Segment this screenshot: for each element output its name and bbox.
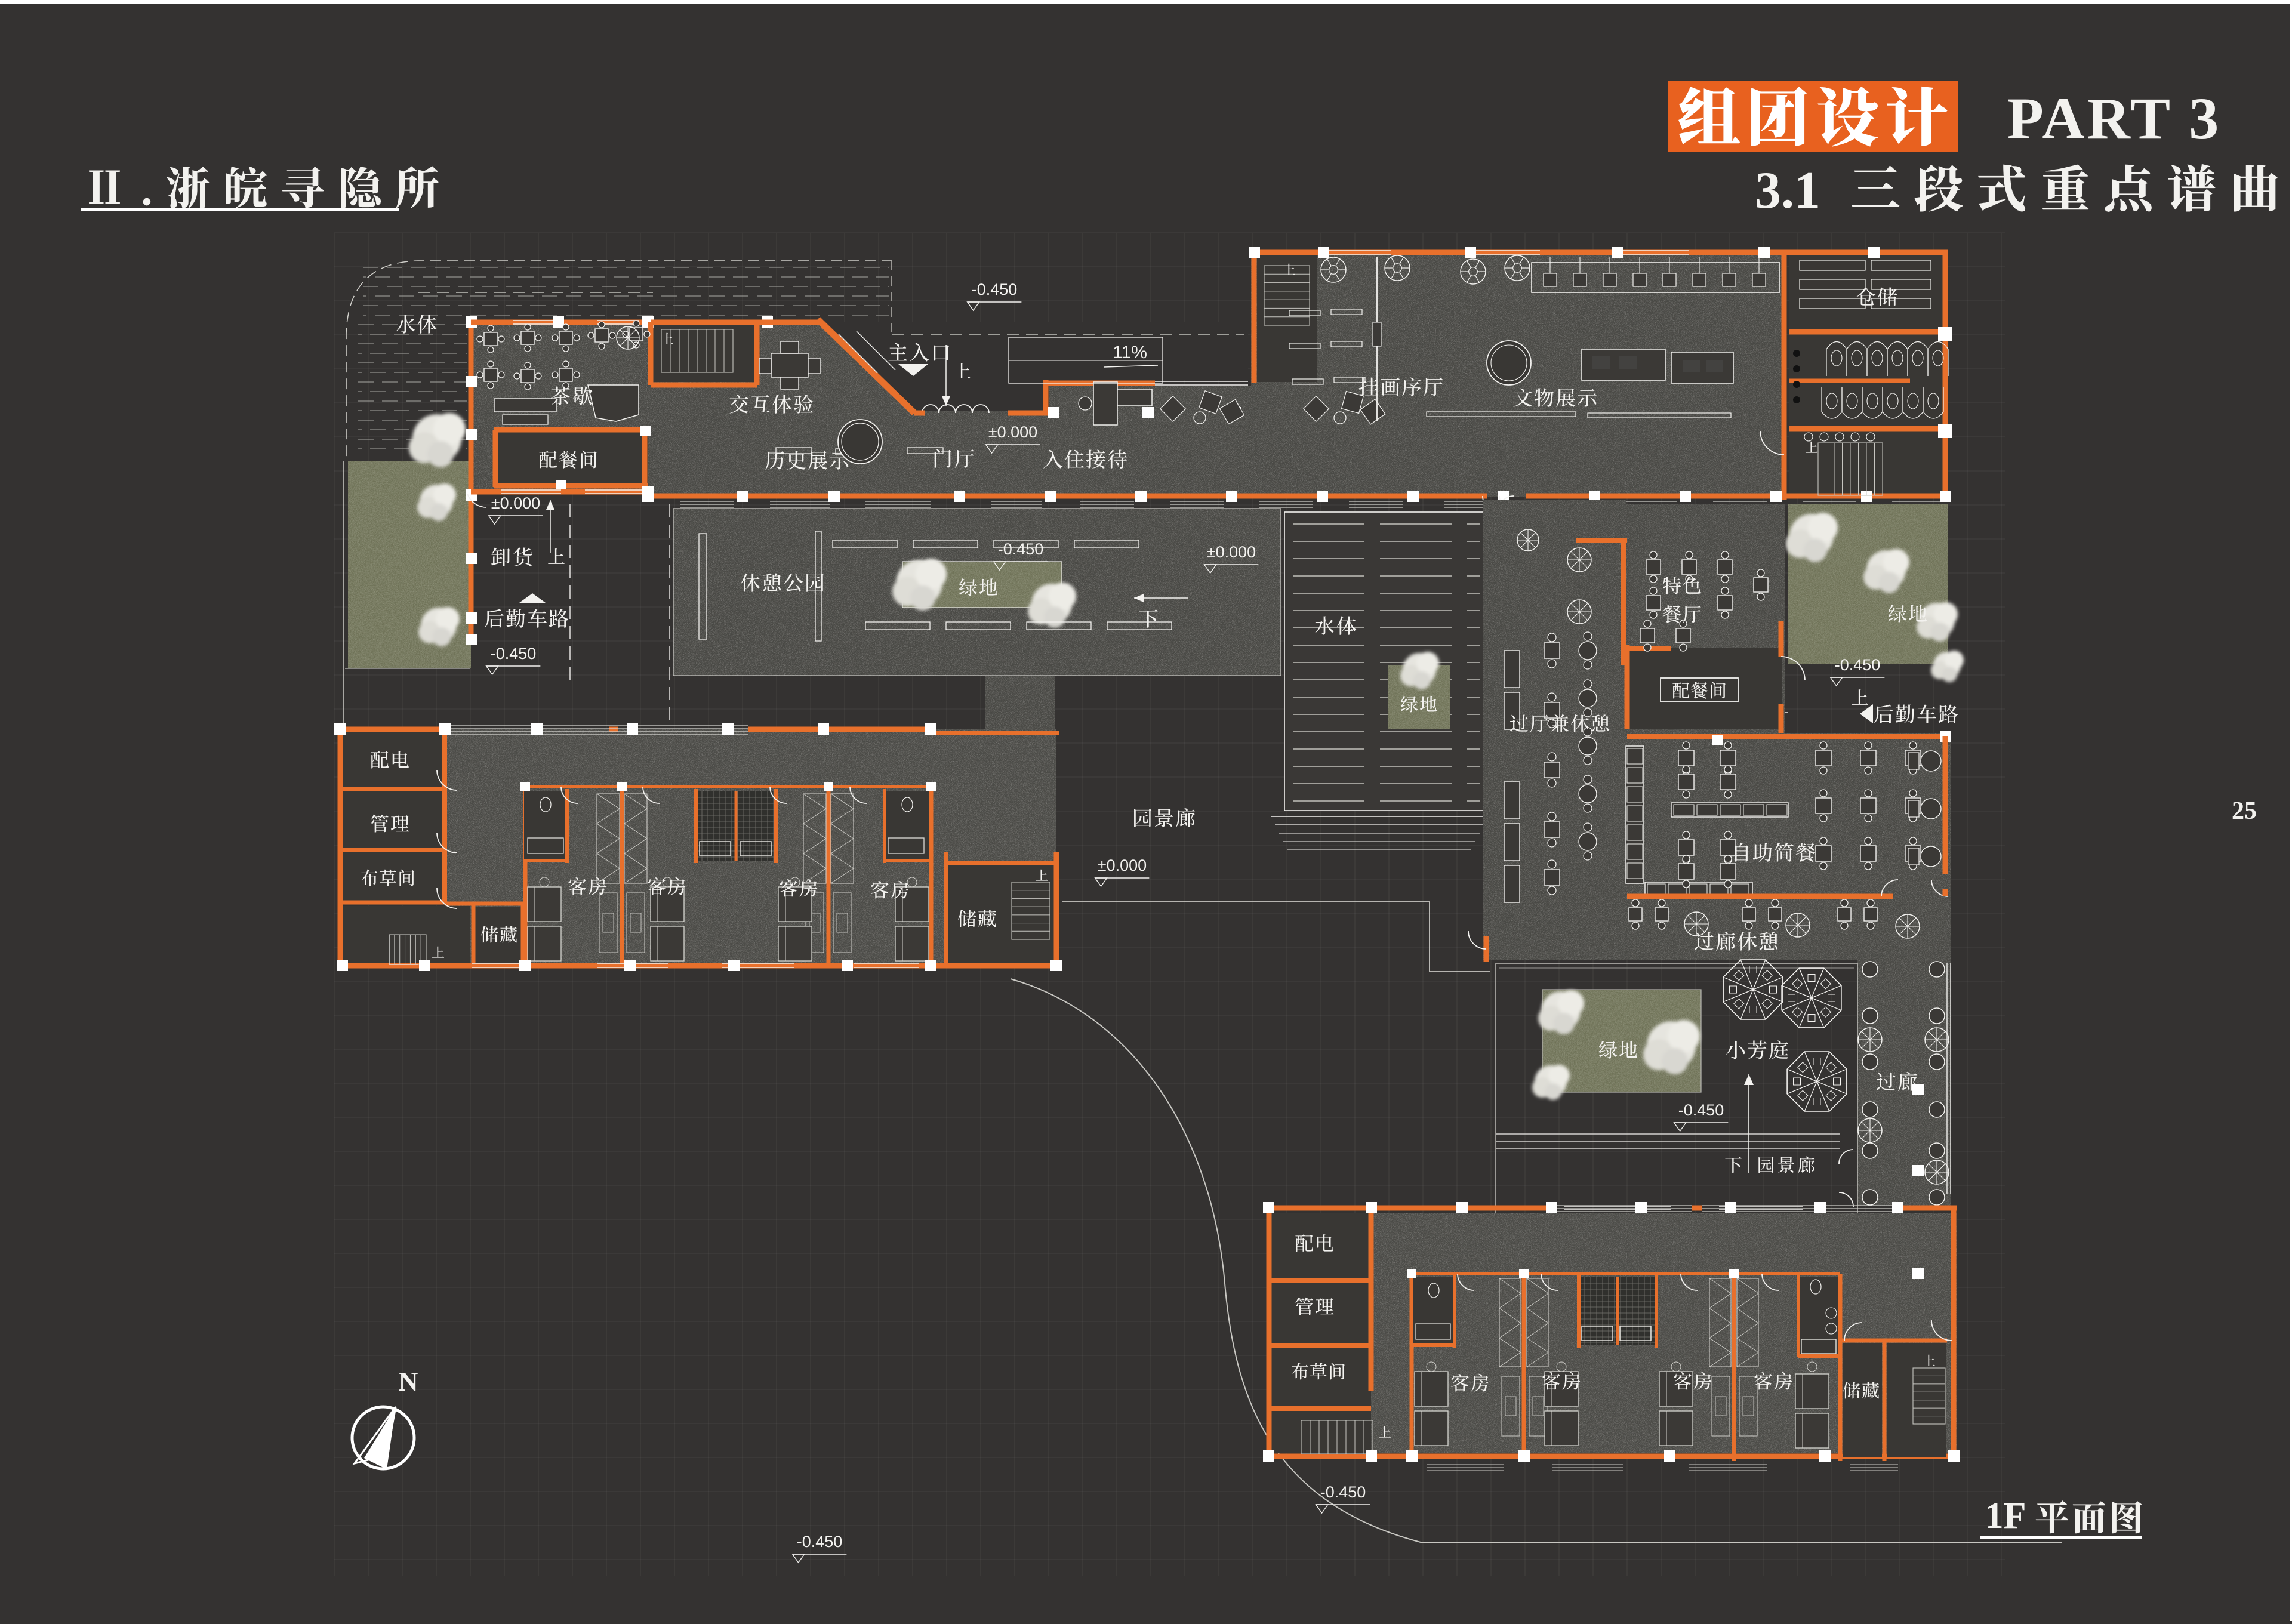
svg-text:±0.000: ±0.000	[988, 423, 1037, 441]
svg-text:±0.000: ±0.000	[491, 494, 540, 512]
svg-text:±0.000: ±0.000	[1207, 543, 1256, 561]
svg-text:1F: 1F	[1985, 1496, 2026, 1536]
svg-text:25: 25	[2232, 797, 2257, 825]
svg-text:-0.450: -0.450	[1835, 656, 1881, 674]
svg-text:±0.000: ±0.000	[1098, 856, 1147, 874]
svg-text:-0.450: -0.450	[1320, 1483, 1366, 1501]
svg-text:N: N	[398, 1366, 418, 1397]
svg-text:-0.450: -0.450	[797, 1533, 843, 1551]
svg-text:-0.450: -0.450	[491, 645, 537, 662]
svg-text:-0.450: -0.450	[1678, 1101, 1724, 1119]
svg-text:-0.450: -0.450	[972, 281, 1018, 298]
svg-text:3.1: 3.1	[1755, 162, 1820, 220]
svg-text:-0.450: -0.450	[998, 540, 1044, 558]
svg-text:11%: 11%	[1113, 343, 1147, 362]
svg-text:PART 3: PART 3	[2007, 85, 2221, 152]
